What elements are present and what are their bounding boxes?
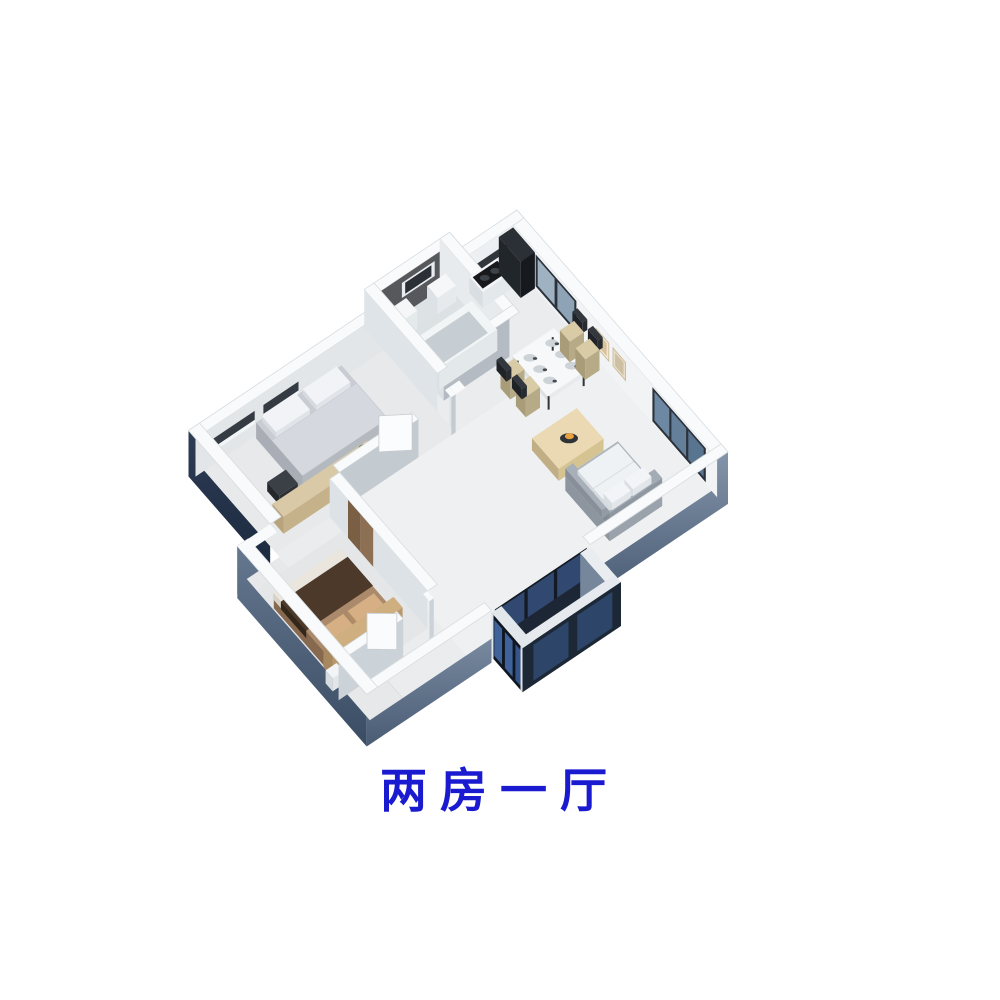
bedroom-wall-face-a <box>451 394 455 435</box>
balcony-sw-window-3 <box>515 644 520 686</box>
page-background: 两房一厅 <box>0 0 1000 1000</box>
bedroom2-ne-wall-face-a <box>429 598 433 639</box>
place-setting-cup-4 <box>533 357 537 360</box>
caption-two-bedrooms-one-living-room: 两房一厅 <box>0 752 1000 821</box>
bedroom2-door-leaf <box>367 613 397 649</box>
place-setting-cup-6 <box>553 380 557 383</box>
coffee-table-fruit <box>565 433 574 439</box>
floorplan-render <box>0 0 1000 1000</box>
place-setting-cup-5 <box>543 368 547 371</box>
cooktop-burner-1 <box>490 268 500 274</box>
bedroom-door-leaf <box>379 414 412 452</box>
balcony-corner-trim-right <box>521 646 523 692</box>
balcony-corner-trim-left <box>492 613 494 659</box>
place-setting-cup-1 <box>555 342 559 345</box>
cooktop-burner-2 <box>480 275 490 281</box>
